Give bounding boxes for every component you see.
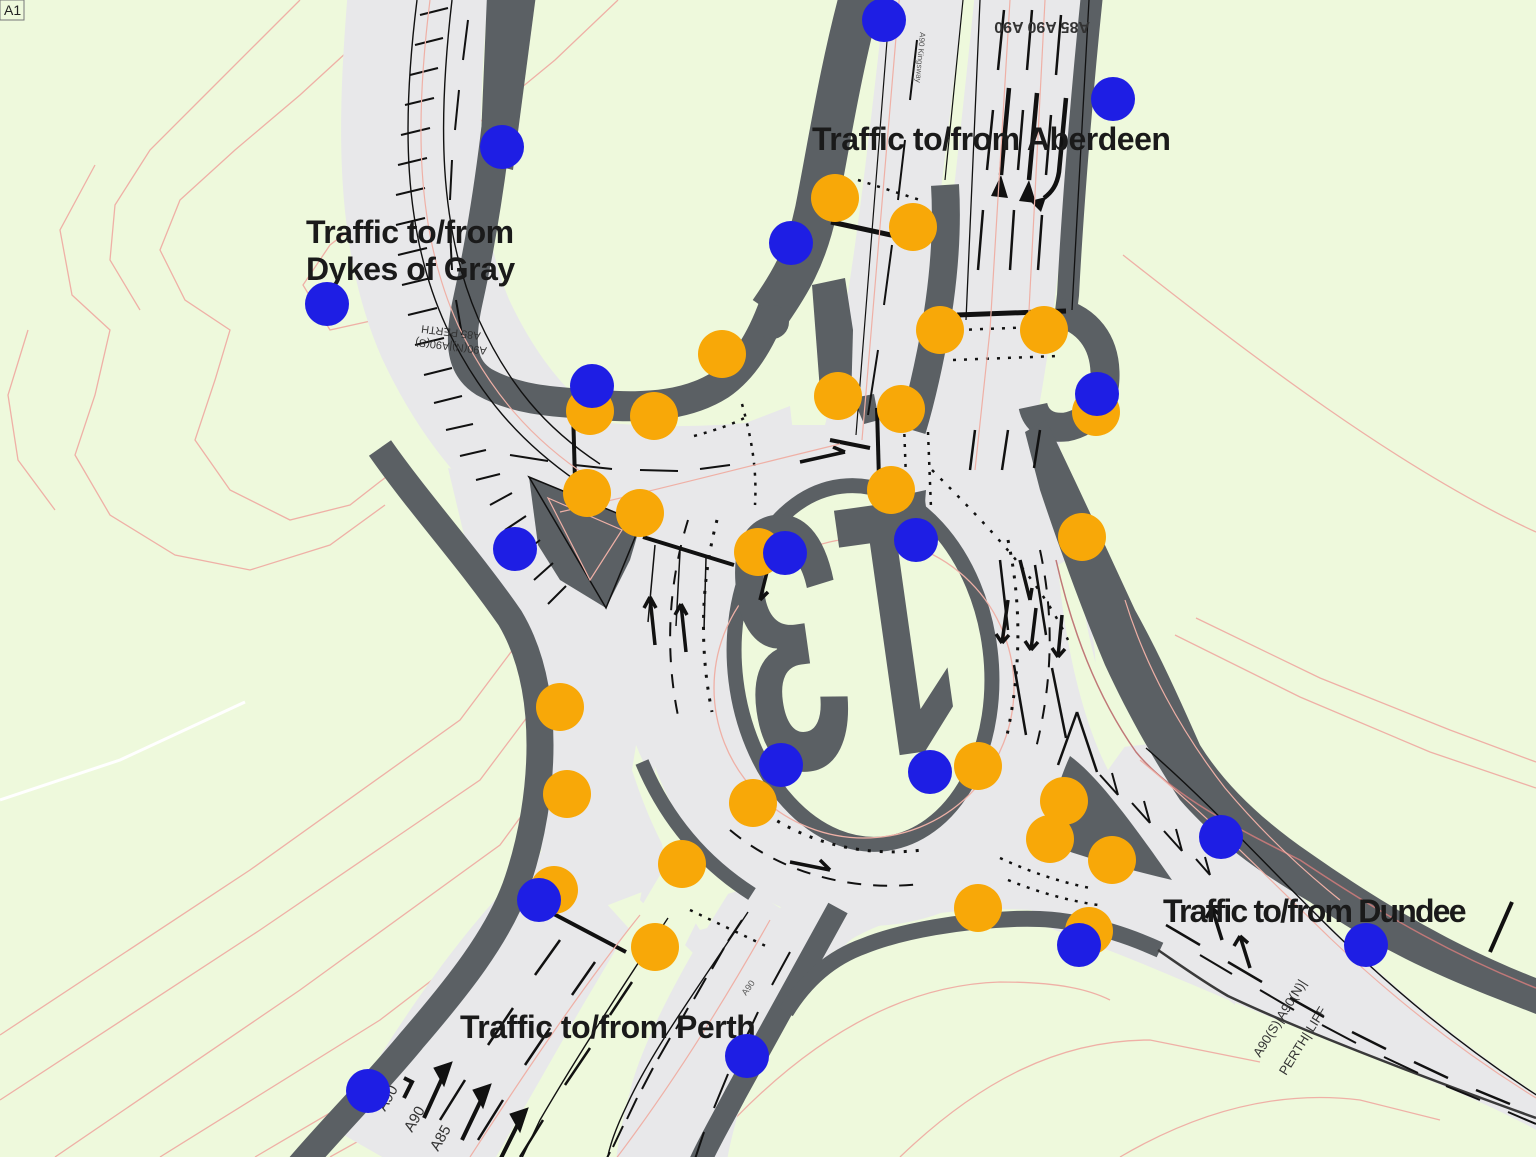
svg-text:Traffic to/from Aberdeen: Traffic to/from Aberdeen bbox=[812, 121, 1170, 157]
svg-text:Traffic to/from Dundee: Traffic to/from Dundee bbox=[1163, 893, 1466, 929]
svg-text:Traffic to/from: Traffic to/from bbox=[306, 214, 514, 250]
svg-text:A85 A90 A90: A85 A90 A90 bbox=[994, 18, 1090, 35]
svg-text:A1: A1 bbox=[4, 2, 21, 18]
svg-text:Traffic to/from Perth: Traffic to/from Perth bbox=[460, 1009, 755, 1045]
svg-text:Dykes of Gray: Dykes of Gray bbox=[306, 251, 515, 287]
